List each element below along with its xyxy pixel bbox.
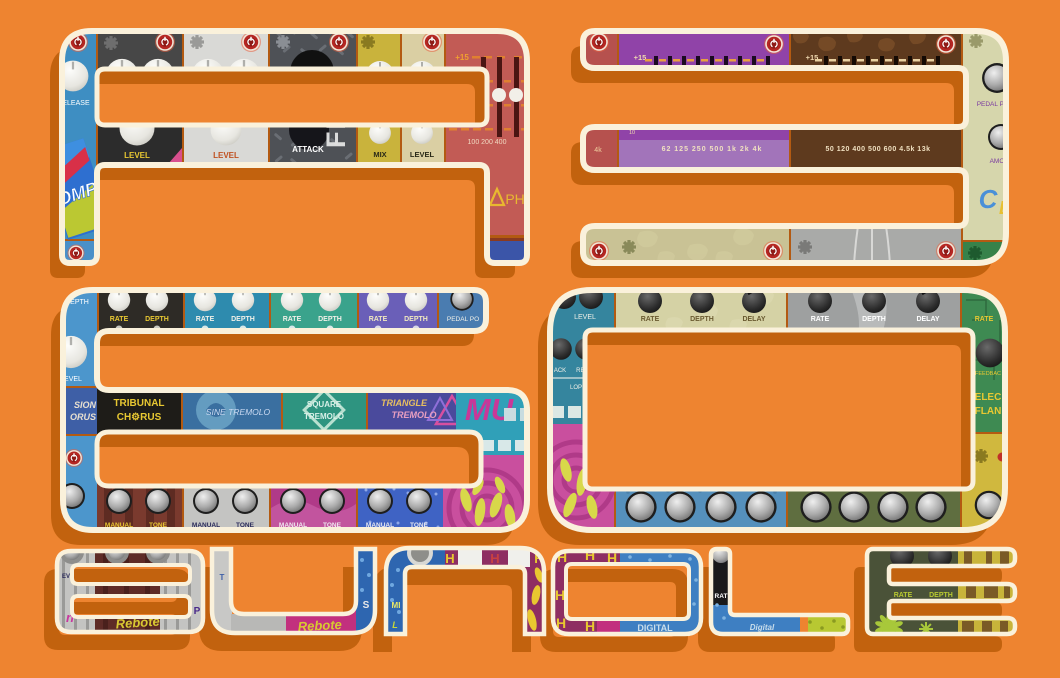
svg-text:SINE TREMOLO: SINE TREMOLO	[206, 407, 271, 417]
svg-text:RATE: RATE	[110, 316, 129, 323]
svg-text:DEPTH: DEPTH	[929, 592, 953, 599]
svg-text:PEDAL PO: PEDAL PO	[447, 316, 479, 323]
svg-text:SION: SION	[74, 400, 97, 410]
svg-text:ELEASE: ELEASE	[62, 100, 90, 107]
svg-text:TRIBUNAL: TRIBUNAL	[113, 398, 164, 409]
svg-text:RATE: RATE	[641, 316, 660, 323]
svg-text:P: P	[194, 606, 201, 617]
svg-text:4k: 4k	[594, 147, 602, 154]
svg-text:SQUARE: SQUARE	[307, 400, 342, 409]
svg-text:50 120 400 500 600 4.5k 13k: 50 120 400 500 600 4.5k 13k	[826, 146, 931, 153]
svg-text:RATE: RATE	[283, 316, 302, 323]
svg-text:MIX: MIX	[373, 150, 386, 159]
svg-text:TRIANGLE: TRIANGLE	[381, 398, 428, 408]
svg-text:ELEC: ELEC	[975, 392, 1002, 403]
svg-text:LEVEL: LEVEL	[124, 151, 150, 160]
svg-text:DIGITAL: DIGITAL	[637, 623, 673, 633]
svg-text:DEPTH: DEPTH	[231, 316, 255, 323]
svg-text:DEPTH: DEPTH	[690, 316, 714, 323]
svg-text:RATE: RATE	[894, 592, 913, 599]
svg-text:LEVEL: LEVEL	[410, 150, 435, 159]
svg-text:DELAY: DELAY	[742, 316, 765, 323]
svg-text:RAT: RAT	[715, 593, 728, 600]
svg-text:TREMOLO: TREMOLO	[304, 412, 344, 421]
svg-text:CH⚙RUS: CH⚙RUS	[117, 412, 162, 423]
svg-text:DELAY: DELAY	[916, 316, 939, 323]
svg-text:DEPTH: DEPTH	[404, 316, 428, 323]
svg-text:EVEL: EVEL	[64, 376, 82, 383]
svg-text:RATE: RATE	[975, 316, 994, 323]
svg-text:RATE: RATE	[196, 316, 215, 323]
svg-text:Digital: Digital	[750, 623, 775, 632]
svg-text:RATE: RATE	[369, 316, 388, 323]
svg-text:TREMOLO: TREMOLO	[392, 410, 437, 420]
svg-text:ORUS: ORUS	[70, 412, 96, 422]
svg-text:H: H	[490, 551, 499, 566]
svg-text:C: C	[979, 184, 999, 214]
svg-text:DEPTH: DEPTH	[862, 316, 886, 323]
svg-text:62 125 250 500 1k 2k: 62 125 250 500 1k 2k 4k	[662, 146, 763, 153]
svg-text:+15: +15	[634, 53, 647, 62]
svg-text:+15: +15	[455, 53, 469, 62]
svg-text:H: H	[445, 551, 454, 566]
svg-text:EV: EV	[62, 574, 70, 580]
svg-text:100 200 400: 100 200 400	[468, 139, 507, 146]
svg-text:L: L	[392, 620, 398, 630]
svg-text:DEPTH: DEPTH	[145, 316, 169, 323]
svg-text:ACK: ACK	[554, 368, 566, 374]
svg-text:AMO: AMO	[990, 158, 1005, 165]
svg-text:S: S	[363, 600, 370, 611]
svg-text:H: H	[555, 587, 565, 603]
svg-text:LEVEL: LEVEL	[574, 314, 596, 321]
svg-text:DEPTH: DEPTH	[318, 316, 342, 323]
svg-text:MI: MI	[392, 601, 401, 610]
svg-text:ATTACK: ATTACK	[292, 145, 324, 154]
svg-text:LEVEL: LEVEL	[213, 151, 239, 160]
svg-text:FLAN: FLAN	[975, 406, 1002, 417]
svg-text:10: 10	[629, 130, 635, 136]
svg-text:FEEDBAC: FEEDBAC	[975, 371, 1001, 377]
svg-text:RATE: RATE	[811, 316, 830, 323]
svg-text:T: T	[220, 573, 225, 582]
